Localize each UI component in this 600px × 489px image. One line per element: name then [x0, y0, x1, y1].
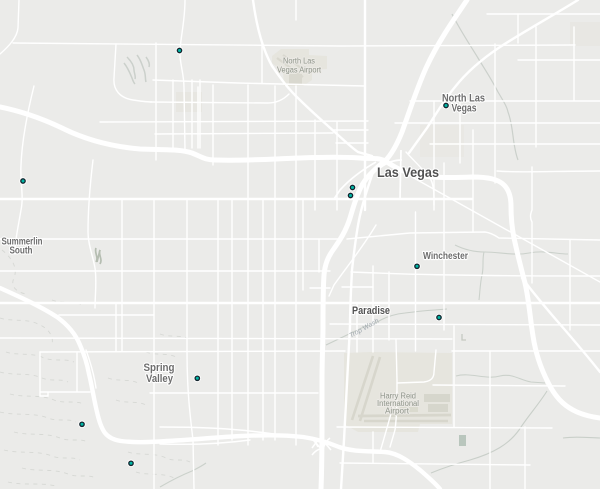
svg-text:Winchester: Winchester: [423, 251, 468, 262]
svg-text:Valley: Valley: [146, 373, 174, 385]
svg-text:North Las: North Las: [283, 57, 315, 66]
svg-text:Paradise: Paradise: [352, 305, 390, 317]
svg-text:Las Vegas: Las Vegas: [377, 165, 439, 180]
svg-text:Vegas: Vegas: [452, 103, 477, 115]
svg-text:Vegas Airport: Vegas Airport: [277, 66, 322, 75]
svg-text:South: South: [10, 246, 33, 257]
svg-text:Airport: Airport: [385, 407, 410, 416]
